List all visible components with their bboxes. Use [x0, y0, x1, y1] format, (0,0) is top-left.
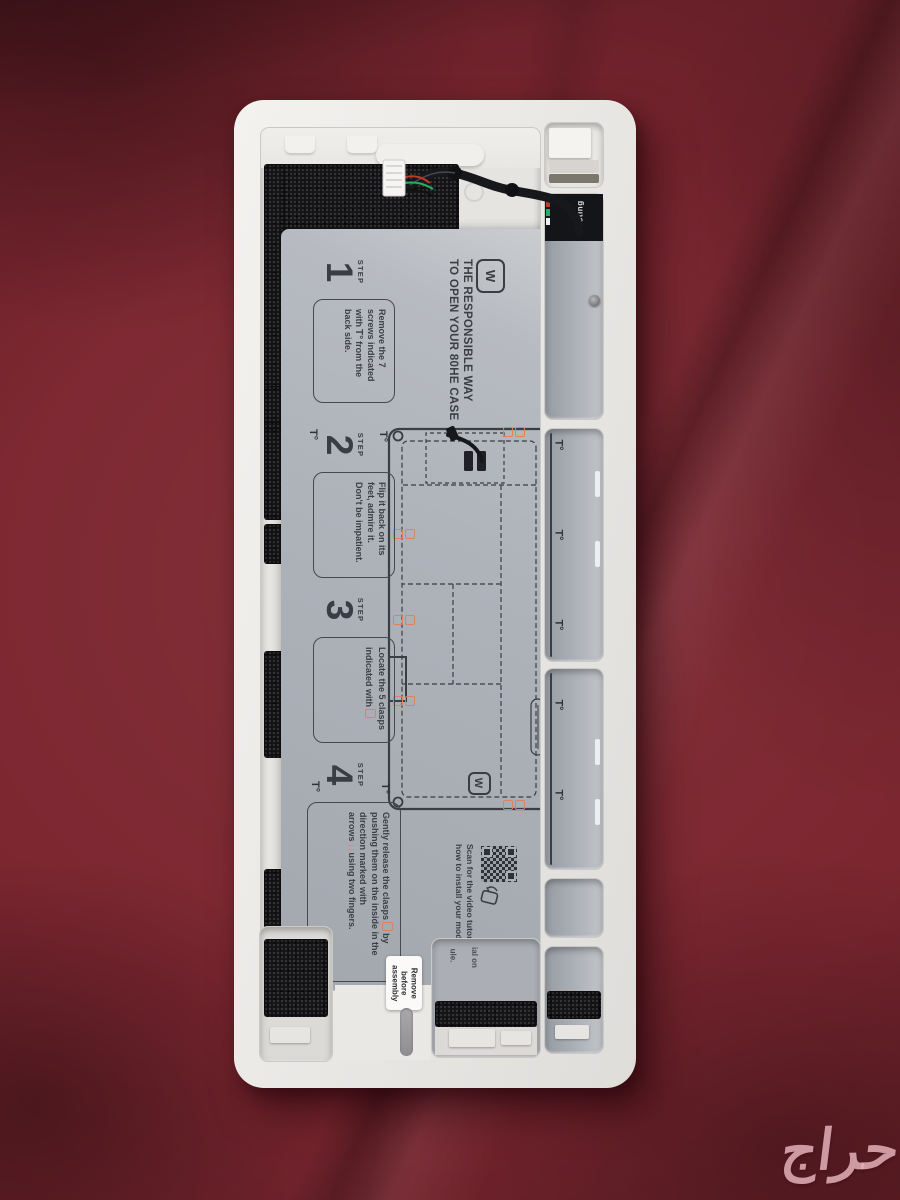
step-3-text: Locate the 5 clasps [377, 647, 387, 730]
clasp-marker [393, 696, 415, 706]
heading-line-1: THE RESPONSIBLE WAY [460, 259, 474, 420]
arrow-down-icon: ↓↓ [347, 844, 357, 851]
bottom-right-slot [544, 946, 604, 1054]
sheet-text-fragment: ule. [448, 949, 457, 963]
bottom-middle-slot: ial on ule. [431, 938, 541, 1058]
bottom-left-slot [259, 926, 333, 1062]
torx-marker: T° [553, 439, 565, 450]
step-2-box: Flip it back on its feet, admire it. Don… [313, 472, 395, 578]
step-2-text: Flip it back on its feet, admire it. Don… [354, 482, 387, 563]
instruction-sheet: W THE RESPONSIBLE WAY TO OPEN YOUR 80HE … [281, 229, 541, 991]
foam-strip [435, 1001, 537, 1027]
torx-icon: T° [353, 329, 364, 339]
qr-code [481, 846, 517, 882]
sheet-text-fragment: ial on [470, 947, 479, 968]
torx-marker: T° [553, 699, 565, 710]
torx-marker: T° [379, 783, 391, 794]
clasp-icon [382, 922, 393, 931]
slot-highlight [595, 541, 600, 567]
small-slot [544, 878, 604, 938]
haraj-watermark: حراج [643, 1116, 900, 1200]
tab-text-line: Remove [409, 965, 419, 1001]
svg-text:W: W [472, 778, 484, 789]
step-3-box: Locate the 5 clasps indicated with [313, 637, 395, 743]
torx-marker: T° [307, 429, 319, 440]
foam-strip [547, 991, 601, 1019]
clasp-marker [393, 529, 415, 539]
clasp-marker [393, 615, 415, 625]
clasp-marker [503, 427, 525, 437]
step-3-text: indicated with [364, 647, 374, 707]
wooting-logo: W [476, 259, 505, 293]
clip [270, 1027, 310, 1043]
slot-highlight [595, 799, 600, 825]
torx-marker: T° [377, 431, 389, 442]
heading-line-2: TO OPEN YOUR 80HE CASE [446, 259, 460, 420]
torx-slot-upper: T° T° T° [544, 428, 604, 662]
foam-block [264, 939, 328, 1017]
clasp-marker [503, 800, 525, 810]
step-3-header: STEP 3 [322, 587, 365, 633]
step-number: 1 [322, 249, 356, 295]
slot-highlight [595, 471, 600, 497]
step-number: 2 [322, 422, 356, 468]
tab-text-line: assembly [390, 965, 400, 1001]
step-2-header: STEP 2 [322, 422, 365, 468]
clip [555, 1025, 589, 1039]
tab-text-line: before [399, 965, 409, 1001]
main-compartment: W THE RESPONSIBLE WAY TO OPEN YOUR 80HE … [260, 127, 541, 991]
step-number: 4 [322, 752, 356, 798]
torx-marker: T° [553, 619, 565, 630]
step-4-text: using two fingers. [347, 853, 357, 930]
step-number: 3 [322, 587, 356, 633]
slot-highlight [595, 739, 600, 765]
sheet-heading: THE RESPONSIBLE WAY TO OPEN YOUR 80HE CA… [446, 259, 473, 420]
pull-strip[interactable] [400, 1008, 413, 1056]
case-tab [285, 136, 315, 153]
jst-cable [330, 135, 620, 255]
clip [501, 1031, 531, 1045]
wooting-logo-glyph: W [483, 270, 498, 282]
step-1-header: STEP 1 [322, 249, 365, 295]
torx-marker: T° [553, 529, 565, 540]
remove-before-assembly-tab[interactable]: Remove before assembly [386, 956, 422, 1010]
torx-marker: T° [553, 789, 565, 800]
step-4-text: Gently release the clasps [381, 812, 391, 920]
screw [589, 295, 600, 306]
torx-slot-lower: T° T° [544, 668, 604, 870]
clip [449, 1029, 495, 1047]
clasp-icon [365, 709, 376, 718]
step-1-box: Remove the 7 screws indicated withT°from… [313, 299, 395, 403]
step-4-header: STEP 4 [322, 752, 365, 798]
phone-icon [479, 885, 503, 907]
